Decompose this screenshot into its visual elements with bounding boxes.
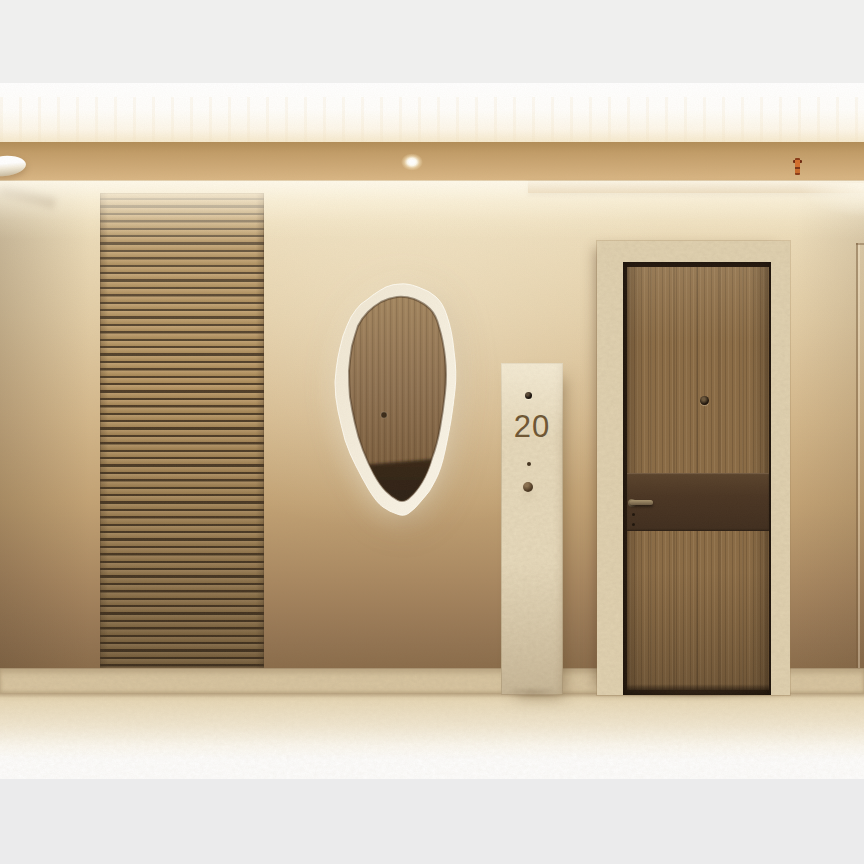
corridor-photo: 20 [0,0,864,864]
unit-number: 20 [501,409,563,445]
keyhole-icon [632,523,635,526]
stone-floor [0,693,864,779]
peephole-reflection [381,412,387,418]
door-floor-shadow [600,690,790,700]
intercom-dot-icon [527,462,531,466]
letterbox-bottom [0,779,864,864]
fire-sprinkler-icon [793,158,802,175]
travertine-door-frame [597,241,790,695]
adjacent-frame-groove-top [856,243,864,245]
door-opening [623,262,771,695]
organic-mirror [318,268,478,532]
doorbell-button [523,482,533,492]
handle-lever [630,500,653,505]
door-camera-icon [525,392,532,399]
ceiling-bulkhead [0,142,864,181]
letterbox-top [0,0,864,83]
keyhole-icon [632,513,635,516]
wood-slat-panel [100,193,264,668]
light-streaks [0,97,864,142]
peephole-icon [700,396,709,405]
recessed-spotlight-icon [398,151,426,173]
sign-floor-shadow [497,690,569,698]
mirror-dark-reflection [326,456,470,532]
ceiling-light-cove [0,83,864,142]
floor-texture [0,693,864,779]
door-handle [628,498,654,507]
sprinkler-body [795,158,800,175]
corner-light-spill [800,183,864,217]
adjacent-frame-groove-highlight [858,243,860,668]
unit-number-sign: 20 [501,363,563,695]
entrance-door [627,267,769,690]
